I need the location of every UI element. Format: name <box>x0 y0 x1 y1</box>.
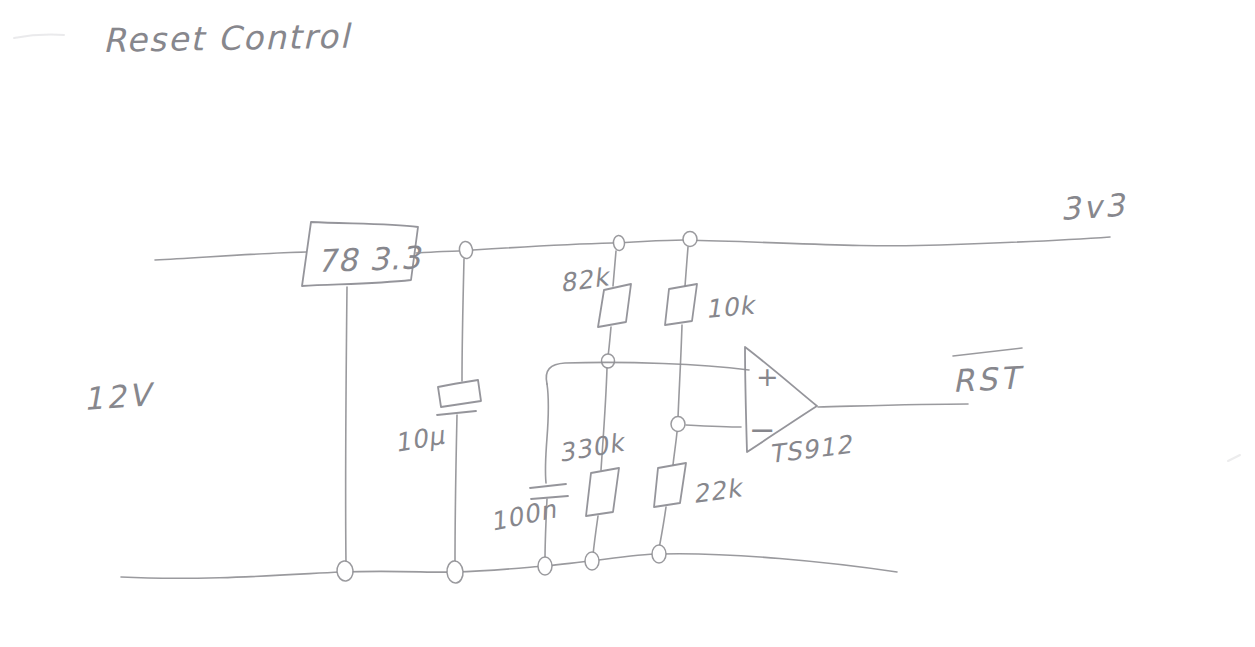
output-rail-label: 3v3 <box>1059 186 1128 227</box>
junction-node-minus-input <box>671 417 685 432</box>
junction-node-gnd-r22k <box>652 545 666 563</box>
cap-10u-wire-top <box>462 259 464 381</box>
cap-100n-wire-top <box>545 384 548 483</box>
r330k-body <box>586 468 619 516</box>
r330k-label: 330k <box>556 427 629 467</box>
cap-10u-wire-bottom <box>455 415 457 565</box>
r22k-wire-top <box>673 432 677 465</box>
regulator-label: 78 3.3 <box>316 239 423 279</box>
cap-100n-label: 100n <box>487 494 559 536</box>
scan-artifact-top-left <box>14 35 64 38</box>
cap-10u-label: 10μ <box>392 421 447 458</box>
r10k-label: 10k <box>704 291 758 324</box>
r22k-label: 22k <box>691 473 746 509</box>
cap-10u-plate-top <box>438 380 481 407</box>
scan-artifact-right <box>1228 455 1240 461</box>
reset-output-wire <box>818 404 968 407</box>
opamp-part-label: TS912 <box>767 430 855 469</box>
r82k-label: 82k <box>558 262 613 298</box>
junction-node-r82k-top <box>613 235 626 251</box>
junction-node-gnd-regulator <box>336 560 354 582</box>
junction-node-gnd-cap10u <box>446 560 464 583</box>
r22k-wire-bottom <box>659 507 666 549</box>
r10k-body <box>665 284 697 325</box>
r22k-body <box>654 463 686 507</box>
input-rail-wire <box>155 252 306 260</box>
cap-100n-plate-top <box>530 484 566 488</box>
sketch-page: Reset Control 12V 3v3 78 3.3 10μ 82k <box>0 0 1255 647</box>
rst-overline <box>953 348 1022 356</box>
r10k-wire-top <box>685 247 688 286</box>
ground-rail-wire <box>121 554 897 579</box>
reset-signal-label: RST <box>951 359 1025 399</box>
input-voltage-label: 12V <box>82 376 157 417</box>
r82k-wire-bottom <box>608 327 611 356</box>
opamp-plus-sign: + <box>756 361 779 392</box>
regulator-ground-wire <box>346 287 347 564</box>
schematic-title: Reset Control <box>102 17 352 60</box>
schematic-canvas: Reset Control 12V 3v3 78 3.3 10μ 82k <box>0 0 1255 647</box>
r82k-wire-top <box>613 251 616 286</box>
minus-input-wire <box>686 425 741 427</box>
junction-node-r10k-top <box>683 232 697 247</box>
plus-input-wire <box>546 362 749 384</box>
junction-node-regulator-out <box>458 241 473 260</box>
junction-node-plus-input <box>602 354 615 368</box>
r10k-wire-bottom <box>678 325 682 418</box>
v33-rail-wire <box>473 237 1110 250</box>
regulator-output-wire <box>416 251 459 253</box>
junction-node-gnd-cap100n <box>538 557 552 575</box>
junction-node-gnd-r330k <box>585 552 599 570</box>
r330k-wire-bottom <box>593 516 598 555</box>
